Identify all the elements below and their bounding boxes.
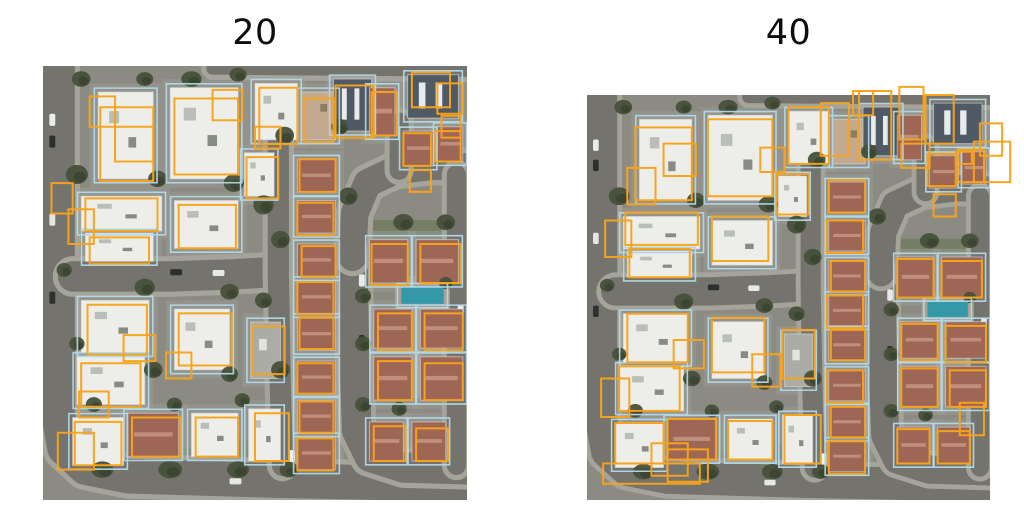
car [49, 292, 55, 304]
roof-unit [811, 139, 817, 145]
roof-unit [639, 224, 653, 229]
car [887, 289, 893, 300]
tree-shadow [889, 409, 897, 417]
roof-unit [128, 137, 136, 147]
house [73, 418, 124, 466]
roof-ridge [933, 170, 954, 173]
house [639, 119, 691, 200]
solar-panel [960, 110, 966, 134]
roof-unit [650, 137, 659, 148]
roof-ridge [421, 259, 453, 263]
roof-unit [114, 382, 123, 388]
tree-shadow [814, 157, 824, 166]
roof-ridge [941, 443, 966, 447]
solar-panel [354, 88, 359, 119]
roof-ridge [906, 384, 934, 388]
tree-shadow [616, 194, 628, 204]
roof-unit [123, 248, 132, 251]
aerial-image-right [587, 95, 990, 500]
roof-unit [201, 423, 209, 429]
roof-ridge [302, 215, 331, 218]
tree-shadow [400, 220, 411, 229]
tree-shadow [705, 469, 717, 478]
tree-shadow [282, 133, 292, 143]
roof-unit [632, 376, 644, 382]
roof-unit [187, 211, 198, 218]
roof-ridge [374, 439, 400, 443]
roof-unit [101, 442, 108, 448]
roof-unit [261, 175, 265, 180]
tree-shadow [227, 289, 237, 298]
solar-panel [883, 116, 888, 145]
car [764, 480, 775, 486]
detection-comparison-figure: 20 40 [0, 0, 1024, 526]
tree-shadow [235, 73, 244, 81]
roof-ridge [951, 338, 982, 342]
house [174, 201, 238, 249]
roof-unit [259, 339, 267, 350]
roof-unit [737, 428, 745, 434]
roof-ridge [833, 455, 861, 458]
tree-shadow [443, 220, 453, 229]
tree-shadow [261, 298, 270, 307]
car [49, 114, 55, 126]
house [244, 153, 274, 196]
roof-unit [90, 367, 102, 374]
aerial-photo [35, 53, 480, 509]
car [708, 285, 719, 291]
aerial-photo [579, 83, 1002, 508]
tree-shadow [345, 194, 355, 204]
roof-ridge [440, 142, 459, 145]
panel-title-left: 20 [43, 16, 467, 51]
tree-shadow [78, 77, 88, 86]
roof-unit [642, 446, 649, 451]
tree-shadow [62, 268, 70, 276]
roof-ridge [833, 234, 861, 237]
tree-shadow [142, 285, 153, 295]
roof-unit [625, 433, 634, 439]
roof-unit [722, 334, 731, 342]
roof-ridge [302, 258, 331, 261]
tree-shadow [889, 352, 897, 360]
tree-shadow [967, 239, 977, 247]
house [81, 300, 149, 352]
roof-unit [792, 350, 799, 361]
roof-unit [745, 244, 753, 249]
car [359, 274, 365, 286]
car [593, 233, 599, 244]
roof-ridge [833, 195, 861, 198]
car [593, 140, 599, 151]
roof-unit [205, 341, 213, 348]
tree-shadow [142, 77, 151, 85]
roof-unit [668, 161, 675, 171]
roof-ridge [302, 295, 331, 298]
roof-unit [663, 265, 672, 268]
roof-ridge [833, 309, 861, 312]
tree-shadow [621, 105, 631, 113]
house [627, 251, 691, 277]
roof-unit [209, 225, 218, 231]
swimming-pool [401, 287, 443, 303]
roof-unit [655, 390, 664, 395]
house [615, 423, 663, 468]
tree-shadow [286, 467, 296, 476]
tree-shadow [810, 255, 820, 264]
roof-ridge [833, 274, 861, 277]
house [778, 176, 806, 217]
roof-unit [97, 204, 112, 209]
roof-unit [797, 123, 804, 130]
roof-ridge [673, 437, 710, 441]
panel-title-right: 40 [587, 16, 990, 51]
roof-ridge [946, 275, 977, 279]
tree-shadow [818, 469, 828, 477]
car [748, 285, 759, 291]
tree-shadow [769, 469, 781, 477]
roof-unit [741, 351, 748, 358]
roof-unit [789, 426, 794, 433]
tree-shadow [278, 237, 288, 247]
tree-shadow [397, 407, 405, 415]
solar-panel [944, 110, 950, 134]
roof-unit [320, 104, 327, 112]
roof-unit [266, 436, 270, 442]
roof-unit [724, 230, 735, 236]
roof-unit [278, 113, 284, 120]
tree-shadow [681, 299, 692, 308]
tree-shadow [361, 402, 370, 410]
car [593, 160, 599, 171]
roof-ridge [302, 174, 331, 177]
roof-ridge [906, 338, 934, 342]
roof-ridge [833, 384, 861, 387]
roof-ridge [302, 332, 331, 335]
house [712, 322, 764, 379]
car [170, 269, 182, 275]
tree-shadow [681, 105, 690, 112]
solar-panel [871, 116, 876, 145]
roof-ridge [425, 376, 457, 380]
tree-shadow [278, 367, 288, 377]
roof-ridge [833, 420, 861, 423]
car [230, 478, 242, 484]
solar-panel [342, 88, 347, 119]
tree-shadow [361, 342, 370, 350]
roof-unit [95, 312, 107, 319]
roof-unit [217, 436, 224, 441]
house [934, 103, 982, 144]
tree-shadow [927, 238, 938, 246]
swimming-pool [928, 302, 968, 317]
roof-ridge [378, 376, 407, 380]
roof-ridge [374, 259, 403, 263]
roof-ridge [302, 415, 331, 418]
roof-unit [263, 96, 271, 104]
roof-ridge [134, 432, 173, 436]
roof-ridge [833, 343, 861, 346]
roof-unit [743, 159, 752, 169]
roof-unit [794, 197, 798, 202]
roof-unit [752, 440, 758, 445]
roof-ridge [425, 326, 457, 330]
roof-unit [99, 239, 111, 243]
roof-ridge [902, 275, 930, 279]
tree-shadow [235, 467, 247, 476]
roof-unit [851, 130, 857, 137]
tree-shadow [150, 367, 160, 376]
tree-shadow [617, 352, 625, 359]
house [249, 409, 281, 461]
tree-shadow [689, 376, 699, 384]
tree-shadow [875, 214, 885, 223]
roof-ridge [407, 146, 430, 149]
roof-ridge [951, 384, 982, 388]
roof-unit [665, 233, 676, 237]
house [174, 309, 229, 370]
roof-unit [784, 185, 789, 191]
tree-shadow [155, 176, 165, 185]
roof-unit [636, 324, 648, 331]
house [623, 314, 687, 363]
roof-unit [659, 339, 668, 345]
tree-shadow [889, 308, 897, 316]
tree-shadow [75, 342, 83, 350]
car [593, 306, 599, 317]
roof-ridge [302, 451, 331, 454]
roof-unit [721, 134, 733, 146]
car [213, 270, 225, 276]
solar-panel [419, 82, 426, 108]
tree-shadow [605, 283, 613, 290]
house [191, 413, 238, 456]
roof-ridge [378, 326, 407, 330]
roof-unit [185, 322, 195, 331]
tree-shadow [167, 467, 180, 477]
tree-shadow [762, 303, 772, 311]
house [708, 115, 772, 200]
tree-shadow [770, 101, 779, 108]
roof-unit [118, 327, 127, 333]
roof-unit [250, 162, 255, 168]
tree-shadow [794, 222, 805, 232]
house [728, 419, 772, 460]
roof-ridge [901, 443, 926, 447]
tree-shadow [260, 202, 271, 213]
roof-unit [799, 440, 803, 446]
roof-ridge [416, 439, 442, 443]
house [782, 415, 812, 464]
roof-unit [125, 214, 136, 218]
roof-unit [184, 108, 196, 121]
roof-ridge [302, 375, 331, 378]
tree-shadow [74, 172, 86, 183]
tree-shadow [361, 294, 370, 302]
roof-unit [640, 257, 652, 261]
car [49, 135, 55, 147]
tree-shadow [794, 312, 803, 320]
house [170, 88, 238, 179]
roof-unit [208, 135, 217, 146]
aerial-image-left [43, 66, 467, 500]
house [712, 221, 772, 266]
tree-shadow [923, 413, 931, 420]
car [49, 214, 55, 226]
house [98, 92, 153, 179]
